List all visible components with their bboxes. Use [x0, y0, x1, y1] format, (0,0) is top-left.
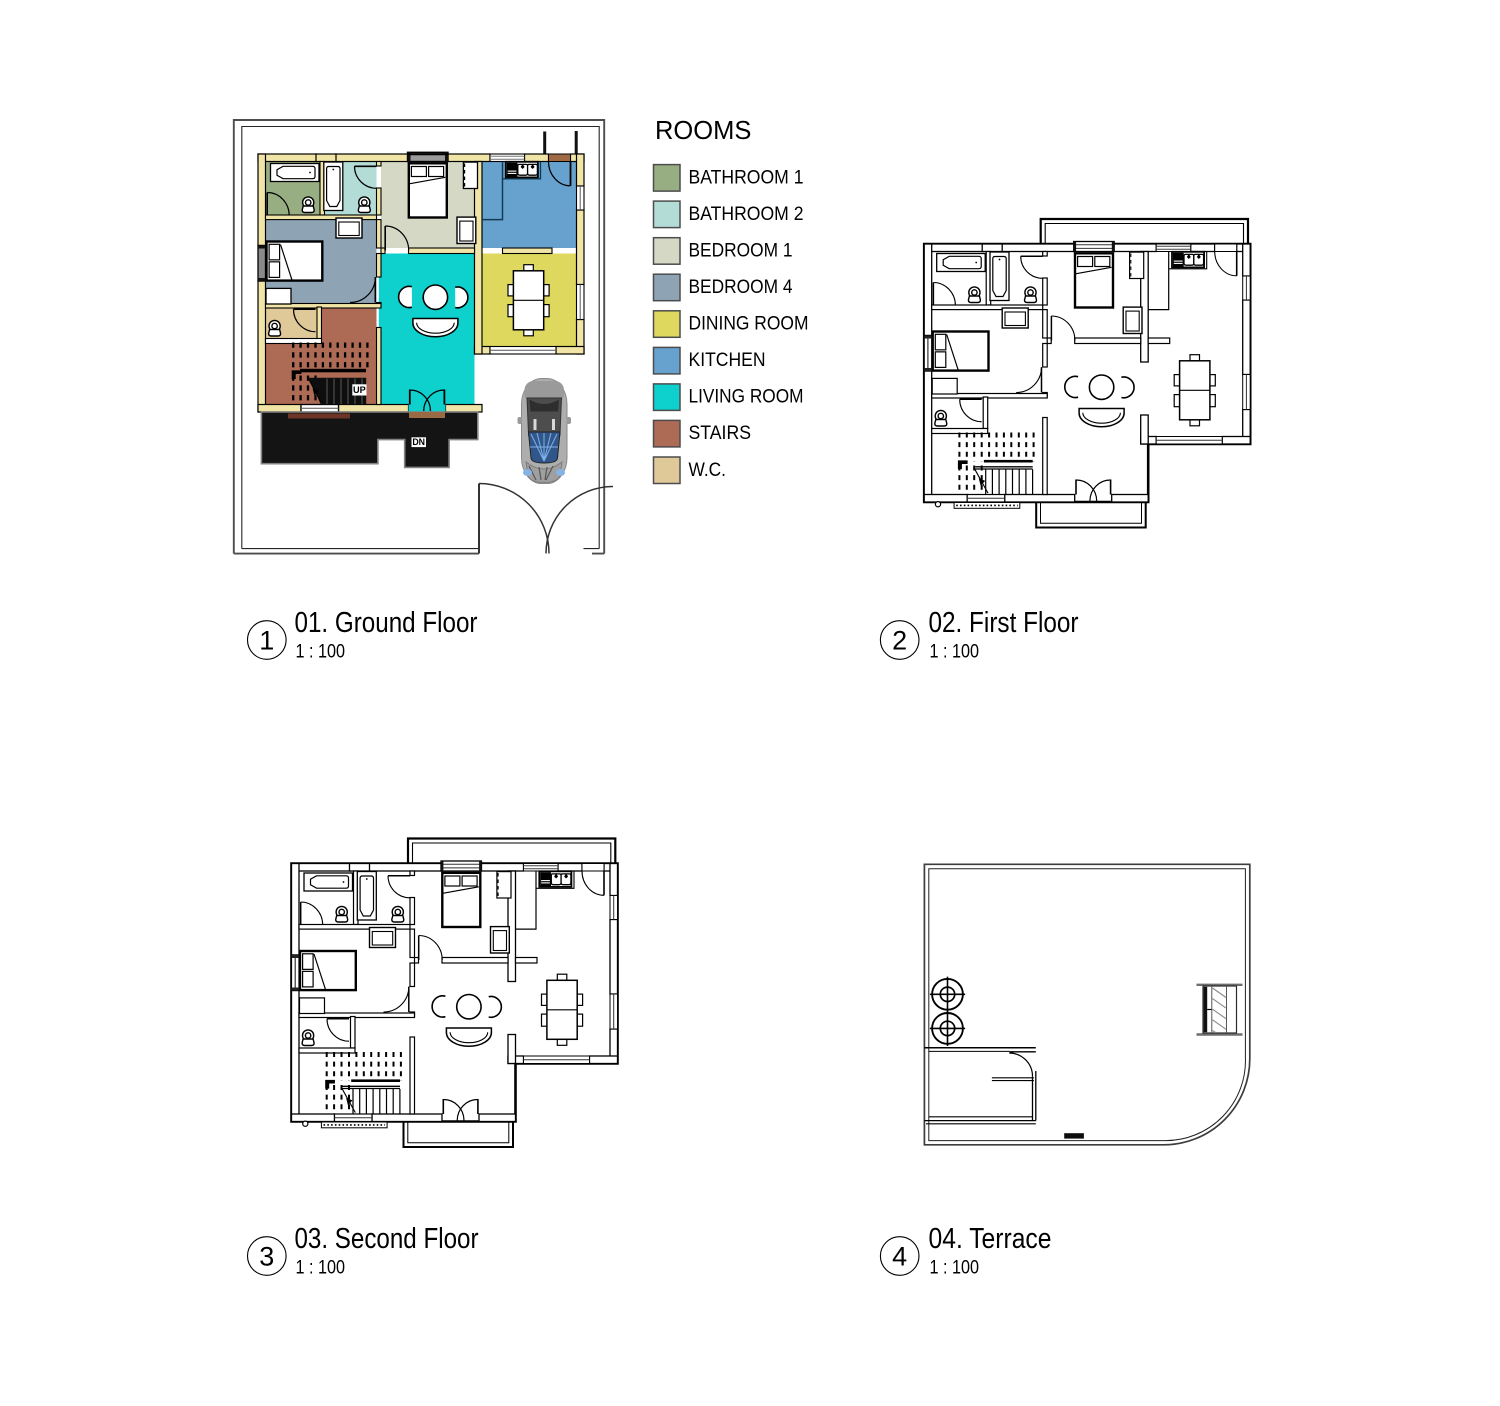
svg-text:LIVING ROOM: LIVING ROOM	[689, 387, 804, 408]
svg-text:KITCHEN: KITCHEN	[689, 350, 766, 371]
svg-text:ROOMS: ROOMS	[655, 117, 751, 145]
svg-text:4: 4	[892, 1242, 907, 1272]
svg-text:1 : 100: 1 : 100	[930, 642, 980, 663]
svg-text:BEDROOM 4: BEDROOM 4	[689, 277, 793, 298]
svg-text:STAIRS: STAIRS	[689, 423, 752, 444]
svg-text:DINING ROOM: DINING ROOM	[689, 314, 809, 335]
svg-text:UP: UP	[353, 385, 366, 395]
svg-text:01. Ground Floor: 01. Ground Floor	[295, 607, 478, 639]
svg-text:2: 2	[892, 626, 907, 656]
svg-text:BEDROOM 1: BEDROOM 1	[689, 241, 793, 262]
svg-text:1 : 100: 1 : 100	[296, 1258, 346, 1279]
svg-text:02. First Floor: 02. First Floor	[929, 607, 1079, 639]
svg-text:03. Second Floor: 03. Second Floor	[295, 1223, 479, 1255]
svg-text:04. Terrace: 04. Terrace	[929, 1223, 1052, 1255]
svg-text:BATHROOM 1: BATHROOM 1	[689, 167, 804, 188]
svg-text:W.C.: W.C.	[689, 460, 727, 481]
svg-text:1: 1	[259, 626, 274, 656]
svg-text:DN: DN	[412, 437, 425, 447]
svg-text:1 : 100: 1 : 100	[930, 1258, 980, 1279]
svg-text:BATHROOM 2: BATHROOM 2	[689, 204, 804, 225]
svg-text:1 : 100: 1 : 100	[296, 642, 346, 663]
svg-text:3: 3	[259, 1242, 274, 1272]
